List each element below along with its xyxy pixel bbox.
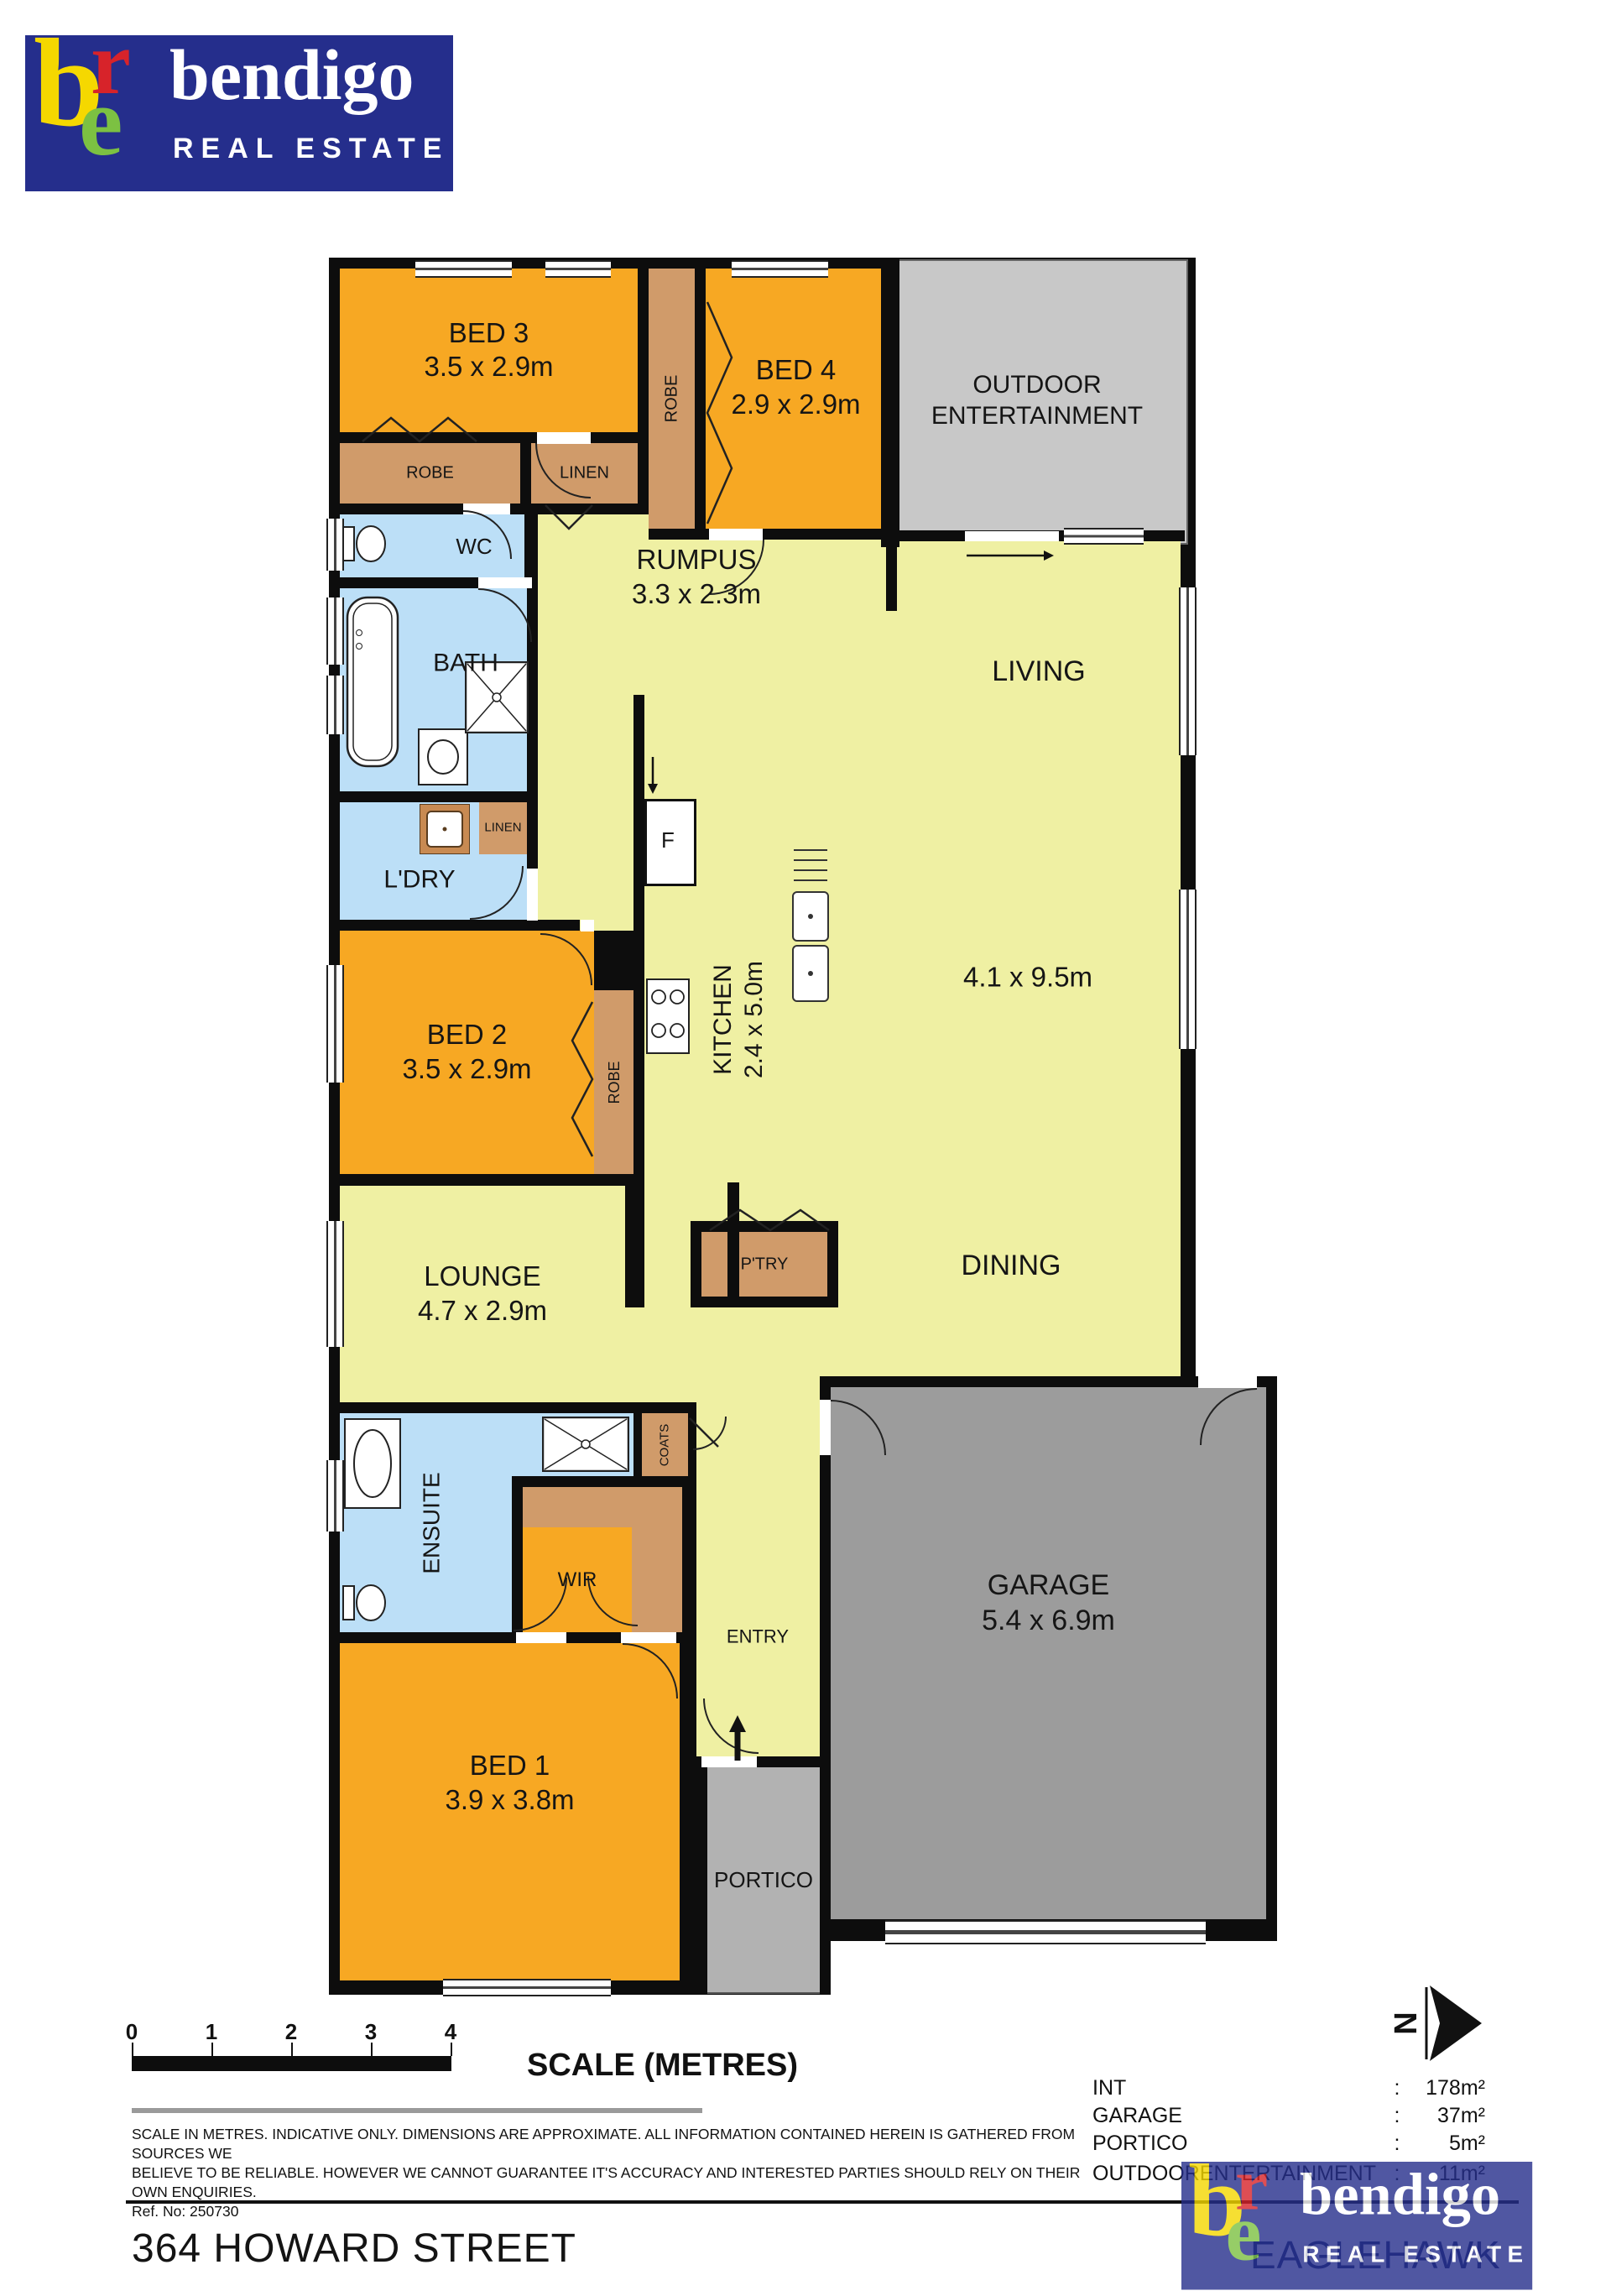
rumpus-living-stub [886,530,897,611]
door-gap-0 [965,531,1059,541]
area-row-garage: GARAGE : 37m² [1092,2104,1485,2128]
door-gap-11 [1198,1376,1257,1388]
door-gap-2 [709,529,763,540]
disclaimer-line-2: BELIEVE TO BE RELIABLE. HOWEVER WE CANNO… [132,2163,1105,2202]
scale-tick-3: 3 [354,2019,388,2045]
scale-bar-rect [132,2056,451,2071]
disclaimer-line-1: SCALE IN METRES. INDICATIVE ONLY. DIMENS… [132,2125,1105,2163]
agency-tagline: REAL ESTATE [1302,2241,1529,2268]
tick-mark [211,2043,213,2056]
window-6 [326,519,344,571]
gray-rule [132,2108,702,2113]
label-wir: WIR [558,1568,597,1593]
scale-label: SCALE (METRES) [527,2048,798,2084]
tick-mark [371,2043,373,2056]
scale-tick-2: 2 [274,2019,308,2045]
area-value: 178m² [1403,2076,1485,2100]
label-bed2: BED 23.5 x 2.9m [402,1018,531,1087]
window-13 [1179,890,1197,1049]
agency-logo-watermark: b r e bendigo REAL ESTATE [1181,2162,1532,2290]
room-corridor [538,695,633,931]
agency-logo-monogram: b r e [25,35,168,191]
area-value: 5m² [1403,2132,1485,2156]
area-colon: : [1391,2132,1403,2156]
room-corridor-2 [644,1218,691,1307]
scale-tick-1: 1 [195,2019,228,2045]
window-9 [326,965,344,1083]
fixture-shower-8 [542,1417,629,1472]
area-row-int: INT : 178m² [1092,2076,1485,2100]
window-7 [326,597,344,665]
fixture-tub-1 [346,596,399,768]
window-12 [1179,587,1197,755]
window-5 [885,1920,1206,1944]
tick-mark [291,2043,293,2056]
label-linen-1: LINEN [560,463,609,484]
door-gap-10 [820,1400,831,1455]
room-entry [696,1307,820,1756]
door-gap-5 [527,869,538,921]
window-3 [1064,528,1144,545]
disclaimer: SCALE IN METRES. INDICATIVE ONLY. DIMENS… [132,2125,1105,2221]
bed2-top-stub [538,920,580,931]
label-wc: WC [456,532,492,559]
fixture-toilet-0 [342,522,389,566]
label-lounge: LOUNGE4.7 x 2.9m [418,1260,547,1328]
label-outdoor-entertainment: OUTDOORENTERTAINMENT [931,369,1143,431]
door-gap-9 [701,1756,757,1767]
north-label: N [1389,2012,1424,2034]
window-0 [415,260,512,278]
label-linen-2: LINEN [484,821,521,837]
label-kitchen: KITCHEN2.4 x 5.0m [707,961,769,1078]
window-4 [443,1979,611,1996]
door-gap-1 [537,432,591,444]
label-robe-bed3: ROBE [406,463,454,484]
fixture-islandsink-6 [789,843,832,1007]
scale-tick-0: 0 [115,2019,149,2045]
door-gap-4 [478,577,532,588]
door-gap-8 [621,1632,676,1643]
label-bed1: BED 13.9 x 3.8m [445,1749,574,1818]
room-kitchen [644,695,897,1221]
door-gap-7 [516,1632,566,1643]
label-bath: BATH [433,647,498,678]
label-ldry: L'DRY [383,864,455,895]
label-rumpus: RUMPUS3.3 x 2.3m [632,543,761,612]
fixture-vanity-2 [418,728,468,785]
fixture-cooktop-5 [646,978,690,1054]
area-label: GARAGE [1092,2104,1391,2128]
street-address: 364 HOWARD STREET [132,2226,576,2272]
watermark-wrapper: b r e bendigo REAL ESTATE [1181,2162,1542,2296]
area-row-portico: PORTICO : 5m² [1092,2132,1485,2156]
floorplan-flyer: b r e bendigo REAL ESTATE BED 33.5 x 2.9… [0,0,1611,2279]
label-entry: ENTRY [727,1625,789,1647]
label-coats: COATS [657,1423,673,1466]
area-value: 37m² [1403,2104,1485,2128]
window-1 [545,260,611,278]
hall-dining-stub [727,1182,739,1307]
ptry-left-wall [691,1221,701,1307]
agency-name: bendigo [169,39,414,111]
area-label: INT [1092,2076,1391,2100]
logo-letter-e: e [79,72,123,171]
label-bed3: BED 33.5 x 2.9m [424,316,553,385]
label-robe-bed2: ROBE [604,1061,623,1104]
living-dims: 4.1 x 9.5m [963,961,1092,995]
window-11 [326,1460,344,1532]
window-10 [326,1221,344,1347]
tick-mark [451,2043,452,2056]
window-8 [326,676,344,734]
label-bed4: BED 42.9 x 2.9m [731,353,860,422]
dining-label: DINING [962,1248,1061,1283]
area-colon: : [1391,2076,1403,2100]
label-fridge: F [661,827,675,853]
agency-logo-monogram: b r e [1181,2162,1298,2290]
tick-mark [132,2043,133,2056]
living-label: LIVING [992,654,1085,689]
fixture-sinkbox-4 [420,804,470,854]
logo-letter-e: e [1225,2192,1261,2273]
label-ensuite: ENSUITE [418,1472,447,1573]
window-2 [732,260,828,278]
disclaimer-ref: Ref. No: 250730 [132,2202,1105,2221]
area-colon: : [1391,2104,1403,2128]
fixture-toilet-9 [342,1581,389,1625]
label-portico: PORTICO [714,1866,813,1893]
label-robe-mid: ROBE [661,375,682,423]
door-gap-6 [581,920,594,931]
label-ptry: P'TRY [741,1254,789,1275]
agency-tagline: REAL ESTATE [173,133,449,165]
room-garage [831,1387,1266,1919]
fixture-vanity-7 [344,1418,401,1509]
bed4-outdoor-wall [881,258,899,547]
room-connector-2 [838,1221,897,1307]
agency-name: bendigo [1300,2164,1500,2224]
label-garage: GARAGE5.4 x 6.9m [982,1568,1115,1638]
scale-tick-4: 4 [434,2019,467,2045]
agency-logo: b r e bendigo REAL ESTATE [25,35,453,191]
